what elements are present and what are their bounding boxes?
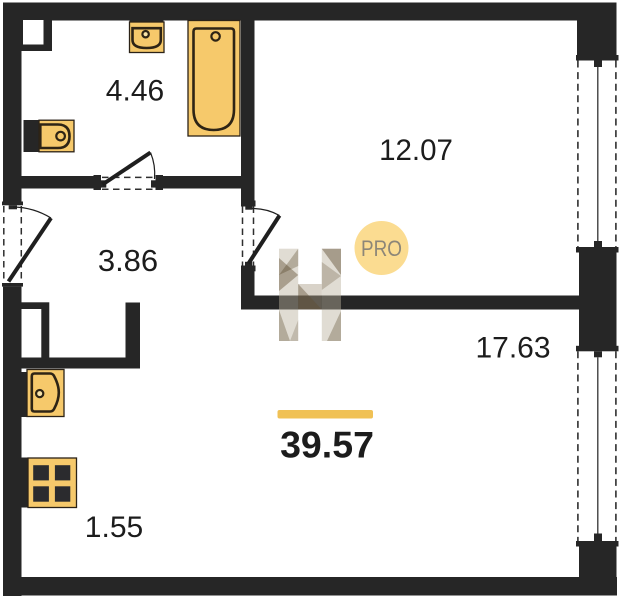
svg-text:3.86: 3.86 bbox=[98, 243, 158, 278]
svg-text:39.57: 39.57 bbox=[280, 424, 374, 466]
svg-text:1.55: 1.55 bbox=[85, 511, 143, 544]
svg-text:PRO: PRO bbox=[361, 236, 402, 261]
svg-text:4.46: 4.46 bbox=[106, 75, 164, 108]
svg-text:17.63: 17.63 bbox=[475, 332, 550, 365]
svg-text:12.07: 12.07 bbox=[379, 134, 453, 167]
